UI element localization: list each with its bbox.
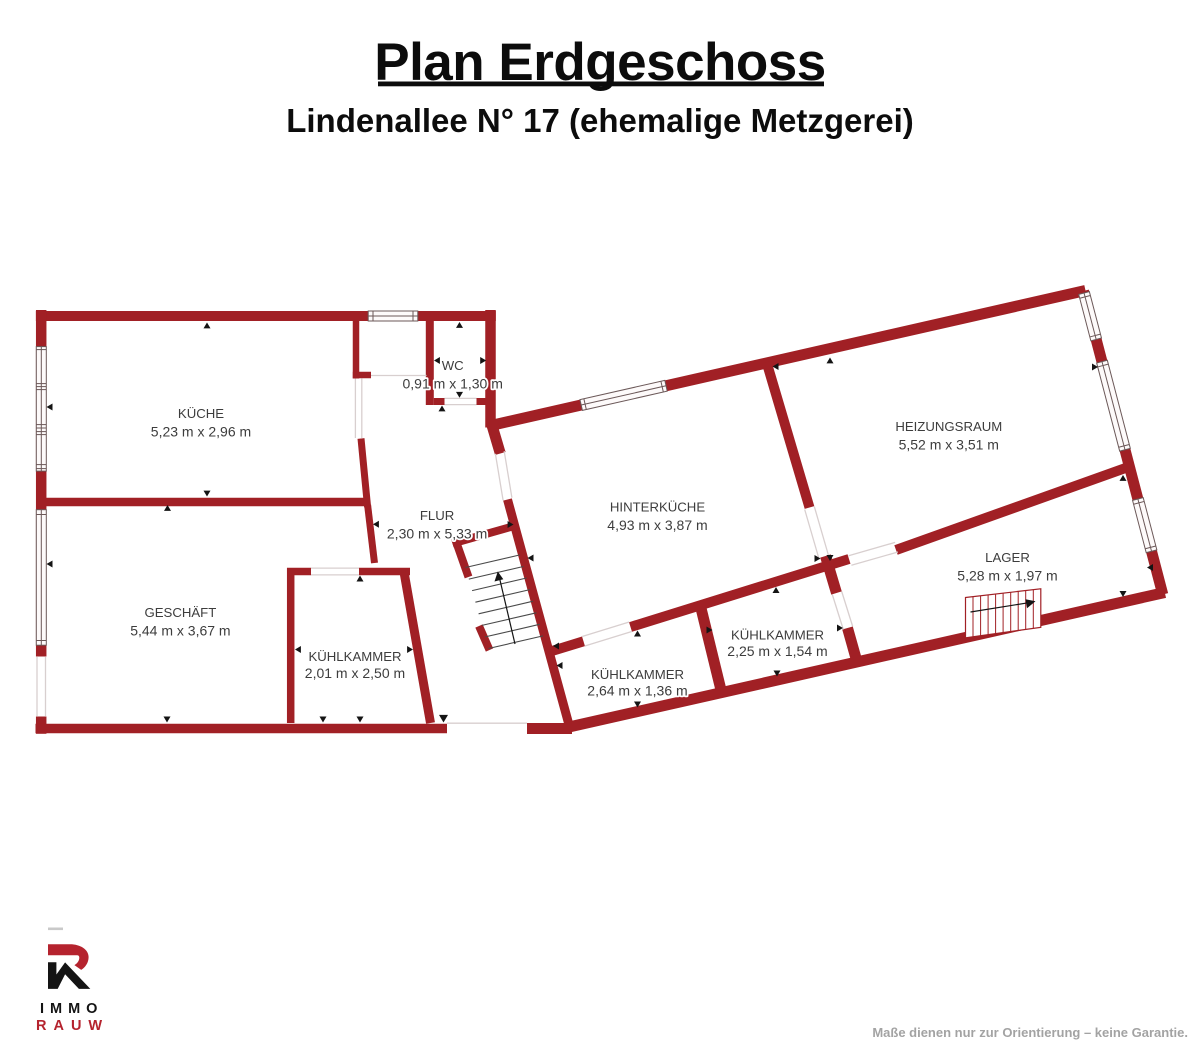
svg-text:LAGER: LAGER [985, 550, 1030, 565]
svg-text:GESCHÄFT: GESCHÄFT [144, 605, 216, 620]
svg-text:KÜHLKAMMER: KÜHLKAMMER [308, 649, 401, 664]
svg-text:Maße dienen nur zur Orientieru: Maße dienen nur zur Orientierung – keine… [872, 1025, 1188, 1040]
svg-text:2,64 m x 1,36 m: 2,64 m x 1,36 m [587, 683, 687, 699]
svg-text:0,91 m x 1,30 m: 0,91 m x 1,30 m [403, 376, 503, 392]
svg-text:5,23 m x 2,96 m: 5,23 m x 2,96 m [151, 424, 251, 440]
svg-text:FLUR: FLUR [420, 508, 454, 523]
svg-text:2,01 m x 2,50 m: 2,01 m x 2,50 m [305, 665, 405, 681]
svg-text:HINTERKÜCHE: HINTERKÜCHE [610, 500, 705, 515]
svg-text:KÜHLKAMMER: KÜHLKAMMER [731, 628, 824, 643]
svg-text:5,28 m x 1,97 m: 5,28 m x 1,97 m [957, 568, 1057, 584]
svg-text:RAUW: RAUW [36, 1018, 109, 1034]
svg-text:HEIZUNGSRAUM: HEIZUNGSRAUM [895, 419, 1002, 434]
svg-text:IMMO: IMMO [40, 1001, 103, 1017]
svg-text:KÜCHE: KÜCHE [178, 406, 224, 421]
svg-text:WC: WC [442, 358, 464, 373]
svg-text:Lindenallee N° 17 (ehemalige M: Lindenallee N° 17 (ehemalige Metzgerei) [286, 102, 914, 139]
svg-text:2,25 m x 1,54 m: 2,25 m x 1,54 m [727, 643, 827, 659]
svg-text:5,52 m x 3,51 m: 5,52 m x 3,51 m [899, 437, 999, 453]
svg-text:4,93 m x 3,87 m: 4,93 m x 3,87 m [607, 517, 707, 533]
svg-text:5,44 m x 3,67 m: 5,44 m x 3,67 m [130, 623, 230, 639]
svg-text:KÜHLKAMMER: KÜHLKAMMER [591, 667, 684, 682]
svg-text:2,30 m x 5,33 m: 2,30 m x 5,33 m [387, 526, 487, 542]
